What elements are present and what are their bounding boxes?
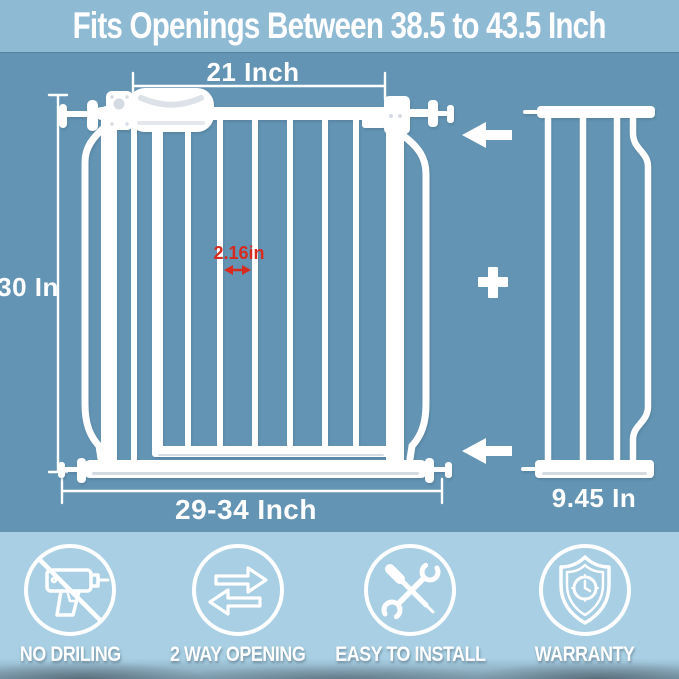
pressure-knob-top-left [59,100,98,131]
gate-height-label: 30 In [0,272,59,303]
pressure-knob-bottom-right [425,458,452,483]
feature-warranty: WARRANTY [515,532,655,667]
two-way-opening-icon [190,542,286,638]
extension-width-label: 9.45 In [552,483,636,514]
gate-handle [128,88,214,132]
left-arrow-icon-lower [462,438,512,464]
gate-width-label: 21 Inch [206,57,299,88]
feature-label: EASY TO INSTALL [335,643,485,667]
easy-to-install-icon [362,542,458,638]
warranty-icon [537,542,633,638]
left-arrow-icon-upper [462,122,512,148]
gate-bars [188,117,356,445]
extension-panel-illustration [521,106,655,478]
opening-range-label: 29-34 Inch [175,494,317,526]
plus-icon [478,267,508,298]
feature-easy-to-install: EASY TO INSTALL [330,532,490,667]
no-drilling-icon [22,542,118,638]
feature-no-drilling: NO DRILING [0,532,140,667]
feature-label: WARRANTY [535,643,635,667]
product-infographic: Fits Openings Between 38.5 to 43.5 Inch [0,0,679,679]
gate-latch [362,96,410,134]
features-band: NO DRILING 2 WAY OPENING EASY [0,532,679,679]
double-arrow-icon [224,265,251,275]
bar-gap-label: 2.16in [213,243,264,264]
main-gate-illustration [58,88,454,483]
feature-two-way-opening: 2 WAY OPENING [163,532,313,667]
feature-label: NO DRILING [20,643,121,667]
feature-label: 2 WAY OPENING [170,643,305,667]
